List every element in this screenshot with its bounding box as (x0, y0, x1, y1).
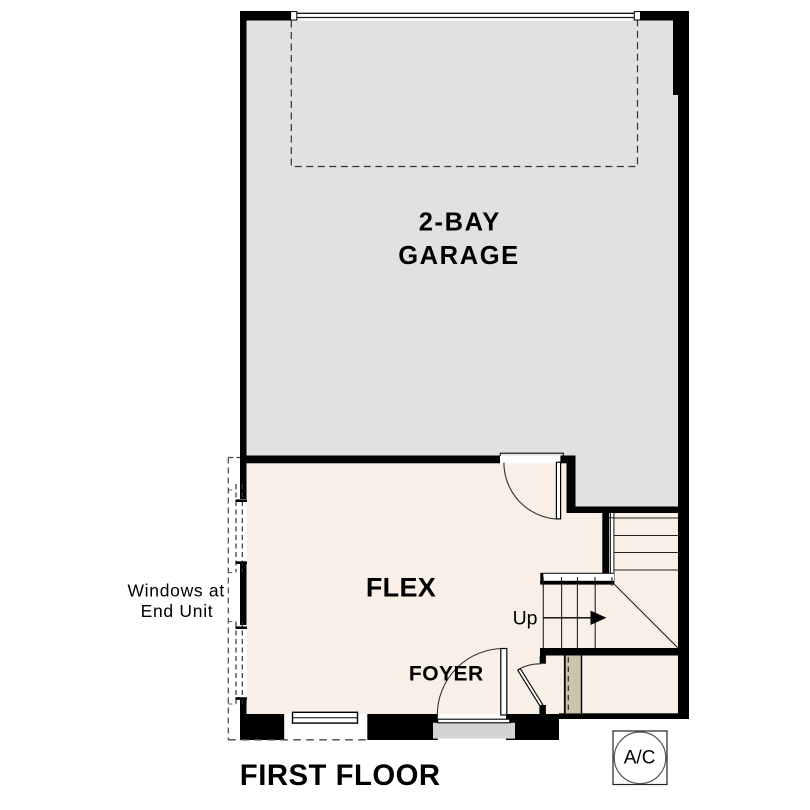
svg-text:FIRST FLOOR: FIRST FLOOR (240, 759, 441, 792)
svg-text:Up: Up (513, 607, 538, 629)
svg-text:FLEX: FLEX (366, 572, 436, 602)
svg-text:A/C: A/C (624, 748, 656, 769)
svg-text:End Unit: End Unit (141, 601, 214, 621)
svg-text:FOYER: FOYER (409, 662, 484, 685)
svg-text:GARAGE: GARAGE (398, 242, 520, 270)
svg-text:2-BAY: 2-BAY (419, 209, 501, 237)
svg-text:Windows at: Windows at (127, 580, 224, 600)
